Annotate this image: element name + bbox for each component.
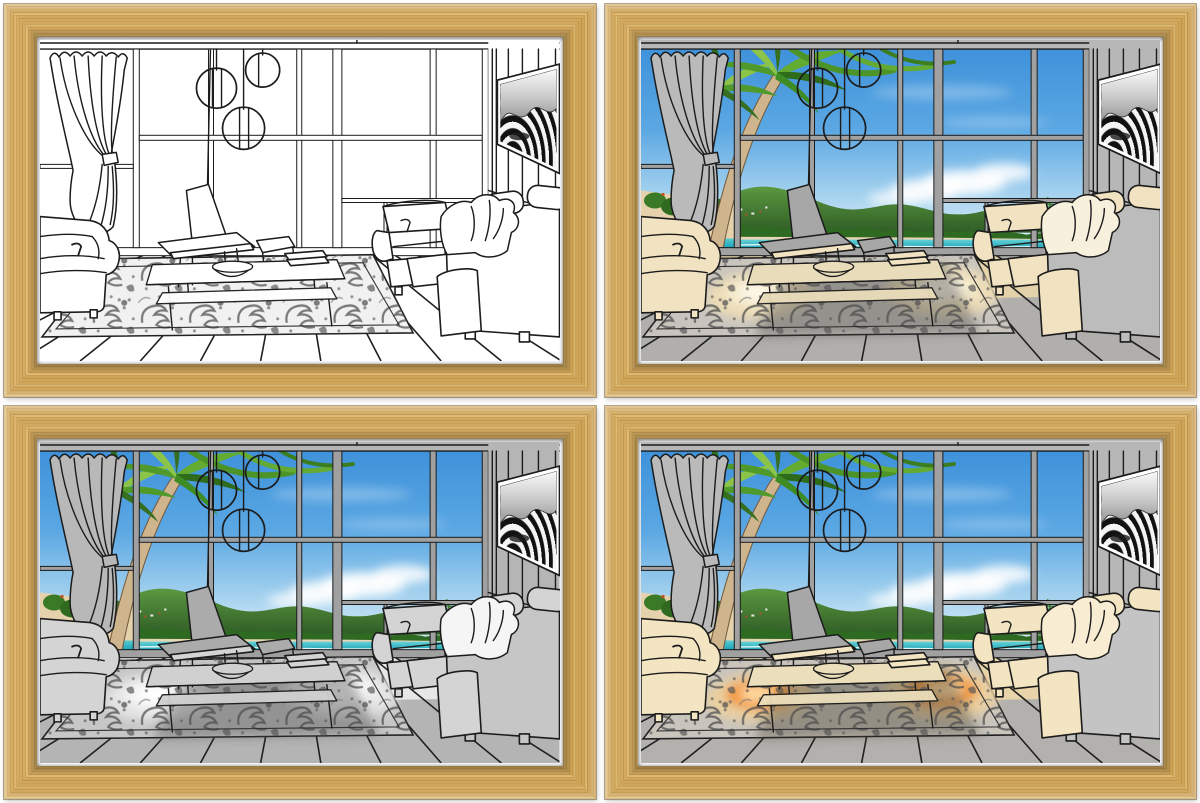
framed-artwork-top-right-beach-view-warm-daylight bbox=[605, 4, 1197, 397]
line-art-scene bbox=[641, 442, 1161, 763]
window-post bbox=[933, 49, 942, 248]
line-art-scene bbox=[641, 40, 1161, 361]
white-mat bbox=[37, 439, 563, 766]
framed-artwork-bottom-left-beach-view-neutral-light bbox=[4, 406, 596, 799]
wood-frame-edge-bottom bbox=[4, 364, 596, 397]
window-rail bbox=[139, 135, 482, 140]
line-art-scene bbox=[40, 442, 560, 763]
wood-frame-edge-right bbox=[563, 406, 596, 799]
wood-frame-edge-top bbox=[605, 4, 1197, 37]
product-photo-grid bbox=[0, 0, 1200, 803]
books bbox=[885, 251, 929, 266]
wood-frame-edge-top bbox=[4, 4, 596, 37]
curtain-tie bbox=[703, 554, 719, 567]
sofa-front-arm bbox=[1038, 269, 1082, 336]
curtain-tie bbox=[102, 554, 118, 567]
sofa-front-arm bbox=[437, 269, 481, 336]
white-mat bbox=[638, 439, 1164, 766]
wood-frame-edge-top bbox=[4, 406, 596, 439]
curtain-tie bbox=[703, 152, 719, 165]
window-post bbox=[933, 451, 942, 650]
sofa-front-arm bbox=[1038, 671, 1082, 738]
framed-artwork-bottom-right-beach-view-orange-glow bbox=[605, 406, 1197, 799]
window-post bbox=[333, 451, 342, 650]
window-post bbox=[333, 49, 342, 248]
books bbox=[285, 251, 329, 266]
wood-frame-edge-left bbox=[605, 4, 638, 397]
white-mat bbox=[37, 37, 563, 364]
framed-artwork-top-left-uncolored-line-art bbox=[4, 4, 596, 397]
sofa-front-arm bbox=[437, 671, 481, 738]
wood-frame-edge-left bbox=[605, 406, 638, 799]
wood-frame-edge-bottom bbox=[4, 766, 596, 799]
sofa-leg bbox=[519, 332, 529, 342]
wood-frame-edge-right bbox=[1163, 406, 1196, 799]
sofa-leg bbox=[519, 734, 529, 744]
wood-frame-edge-right bbox=[1163, 4, 1196, 397]
window-rail bbox=[740, 135, 1083, 140]
white-mat bbox=[638, 37, 1164, 364]
wood-frame-edge-bottom bbox=[605, 364, 1197, 397]
sofa-leg bbox=[1120, 734, 1130, 744]
wood-frame-edge-bottom bbox=[605, 766, 1197, 799]
curtain-tie bbox=[102, 152, 118, 165]
wood-frame-edge-right bbox=[563, 4, 596, 397]
window-rail bbox=[740, 537, 1083, 542]
books bbox=[285, 653, 329, 668]
window-rail bbox=[139, 537, 482, 542]
books bbox=[885, 653, 929, 668]
wood-frame-edge-top bbox=[605, 406, 1197, 439]
wood-frame-edge-left bbox=[4, 4, 37, 397]
line-art-scene bbox=[40, 40, 560, 361]
wood-frame-edge-left bbox=[4, 406, 37, 799]
sofa-leg bbox=[1120, 332, 1130, 342]
